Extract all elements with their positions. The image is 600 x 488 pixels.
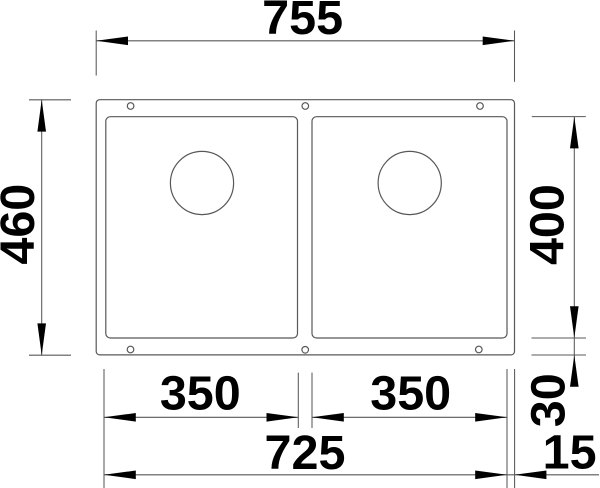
svg-text:725: 725 — [265, 426, 346, 480]
svg-text:350: 350 — [370, 367, 451, 421]
svg-text:755: 755 — [262, 0, 343, 45]
svg-text:15: 15 — [543, 425, 597, 479]
svg-text:30: 30 — [522, 373, 576, 427]
svg-text:350: 350 — [160, 367, 241, 421]
svg-text:460: 460 — [0, 184, 45, 265]
svg-text:400: 400 — [521, 184, 575, 265]
